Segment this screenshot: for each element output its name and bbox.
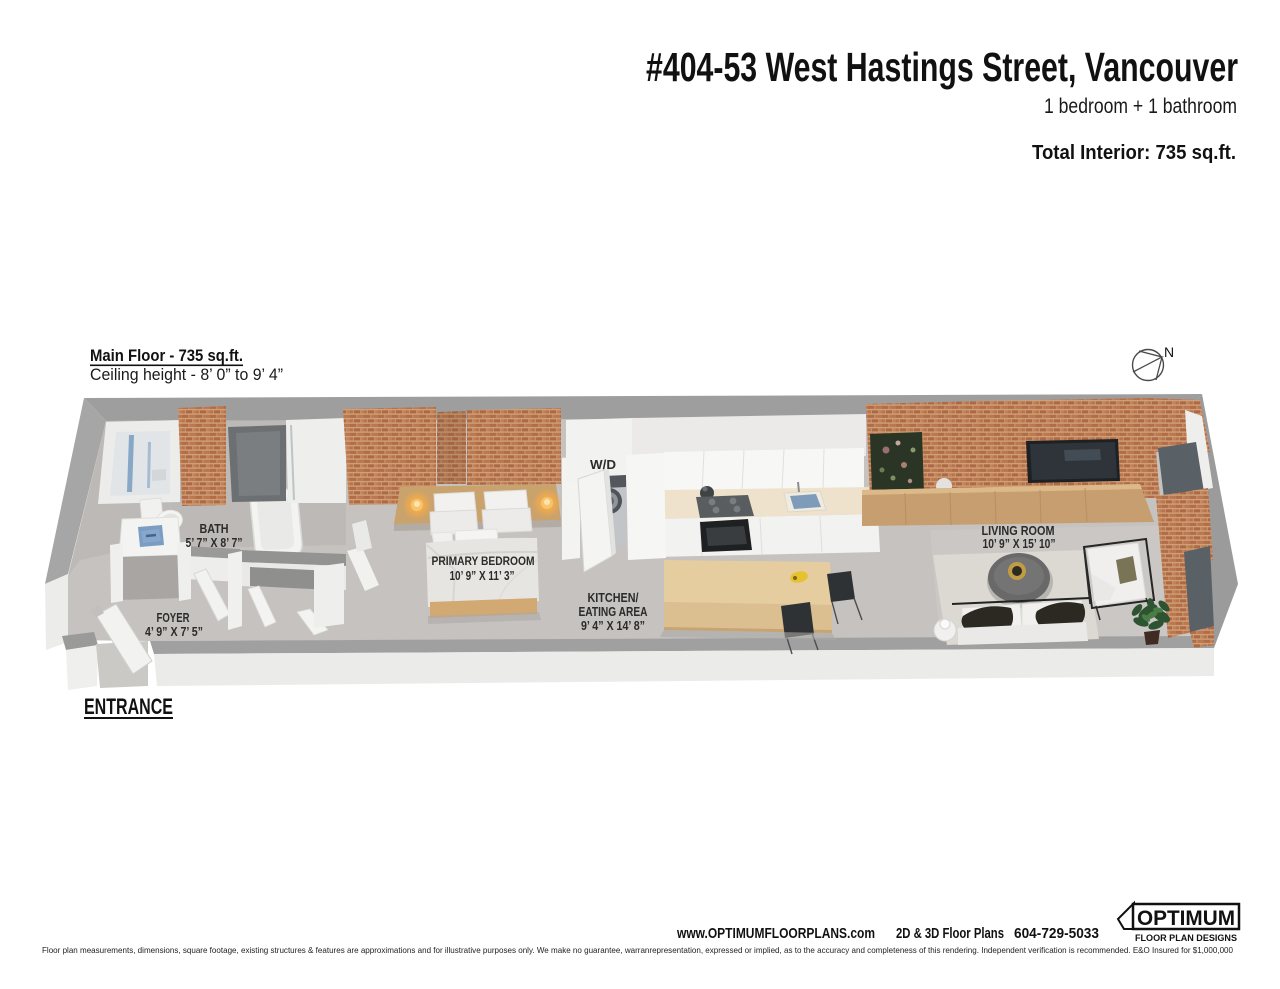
- svg-text:ENTRANCE: ENTRANCE: [84, 694, 173, 719]
- svg-text:N: N: [1164, 344, 1174, 360]
- svg-text:W/D: W/D: [590, 458, 616, 472]
- svg-text:4’ 9” X 7’ 5”: 4’ 9” X 7’ 5”: [145, 624, 203, 639]
- svg-text:2D & 3D Floor Plans: 2D & 3D Floor Plans: [896, 925, 1004, 942]
- svg-text:Ceiling height - 8’ 0” to 9’ 4: Ceiling height - 8’ 0” to 9’ 4”: [90, 365, 283, 384]
- svg-text:FOYER: FOYER: [157, 611, 190, 625]
- svg-text:OPTIMUM: OPTIMUM: [1137, 907, 1235, 930]
- svg-text:Total Interior: 735 sq.ft.: Total Interior: 735 sq.ft.: [1032, 142, 1236, 164]
- svg-text:604-729-5033: 604-729-5033: [1014, 925, 1099, 942]
- svg-text:BATH: BATH: [200, 522, 229, 536]
- svg-text:EATING AREA: EATING AREA: [579, 605, 648, 619]
- svg-text:Floor plan measurements, dimen: Floor plan measurements, dimensions, squ…: [42, 945, 1233, 955]
- svg-text:10’ 9” X 15’ 10”: 10’ 9” X 15’ 10”: [983, 536, 1056, 551]
- svg-text:1 bedroom + 1 bathroom: 1 bedroom + 1 bathroom: [1044, 95, 1237, 118]
- svg-text:9’ 4” X 14’ 8”: 9’ 4” X 14’ 8”: [581, 618, 645, 633]
- svg-text:#404-53 West Hastings Street,: #404-53 West Hastings Street, Vancouver: [646, 44, 1238, 90]
- svg-text:KITCHEN/: KITCHEN/: [588, 591, 639, 605]
- svg-text:5’ 7” X 8’ 7”: 5’ 7” X 8’ 7”: [186, 535, 243, 550]
- svg-text:www.OPTIMUMFLOORPLANS.com: www.OPTIMUMFLOORPLANS.com: [676, 925, 875, 942]
- svg-text:Main Floor - 735 sq.ft.: Main Floor - 735 sq.ft.: [90, 346, 243, 365]
- svg-text:FLOOR PLAN DESIGNS: FLOOR PLAN DESIGNS: [1135, 933, 1237, 944]
- svg-text:10’ 9” X 11’ 3”: 10’ 9” X 11’ 3”: [450, 568, 515, 583]
- svg-text:PRIMARY BEDROOM: PRIMARY BEDROOM: [432, 554, 535, 568]
